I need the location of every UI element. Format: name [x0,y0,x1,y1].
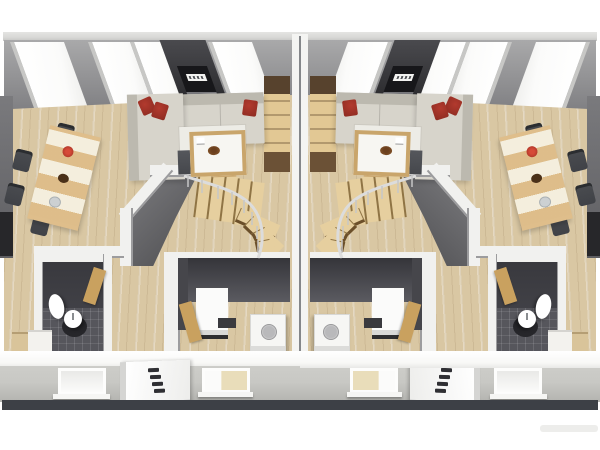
tv-brand-label [393,74,415,81]
door-lite [154,389,165,393]
hallway-cabinets [548,330,588,352]
washing-machine [250,314,286,352]
stair-railing [308,156,460,272]
bathroom-wall [488,254,566,262]
door-lite [152,382,163,386]
door-lite [439,375,450,379]
roof-window [10,42,88,108]
door-lite [150,375,161,379]
wall-tv-screen [383,66,424,95]
red-cushion [342,99,358,117]
facade-window [350,368,398,393]
outer-side-wall [587,96,600,258]
decor-bowl [380,146,392,155]
ground-floor-facade [300,366,600,402]
door-lite [435,389,446,393]
stair-railing [140,156,292,272]
tap [72,313,74,320]
facade-base-band [2,400,598,410]
dark-counter [364,318,382,328]
shelf-top-cabinet [264,76,290,94]
table-card [196,137,204,144]
washing-machine [314,314,350,352]
ground-shadow [540,425,598,432]
ground-floor-facade [0,366,300,402]
window-sill [347,392,402,397]
red-cushion [242,99,258,117]
washer-lid [323,324,339,340]
tv-brand-label [186,74,208,81]
shelf-top-cabinet [310,76,336,94]
tap [526,313,528,320]
floorplan-render [0,0,600,450]
bathroom-wall [103,254,112,352]
window-sill [198,392,253,397]
washer-lid [261,324,277,340]
door-lite [148,368,159,372]
dark-counter [218,318,236,328]
decor-bowl [208,146,220,155]
outer-side-wall [0,96,13,258]
window-sill [490,394,547,399]
facade-window [494,368,542,395]
door-lite [437,382,448,386]
washbasin [64,310,82,328]
hallway-cabinets [12,330,52,352]
washbasin [518,310,536,328]
facade-window [58,368,106,395]
wall-tv-screen [177,66,218,95]
right-apartment [300,0,600,450]
side-doorway [587,212,600,256]
door-lite [441,368,452,372]
side-doorway [0,212,13,256]
facade-window [202,368,250,393]
table-card [395,137,403,144]
bathroom-wall [34,254,112,262]
window-sill [53,394,110,399]
roof-window [512,42,590,108]
left-apartment [0,0,300,450]
fridge-cabinet [196,288,228,339]
bathroom-wall [488,254,497,352]
party-wall [292,34,308,366]
party-wall-seam [299,36,301,354]
